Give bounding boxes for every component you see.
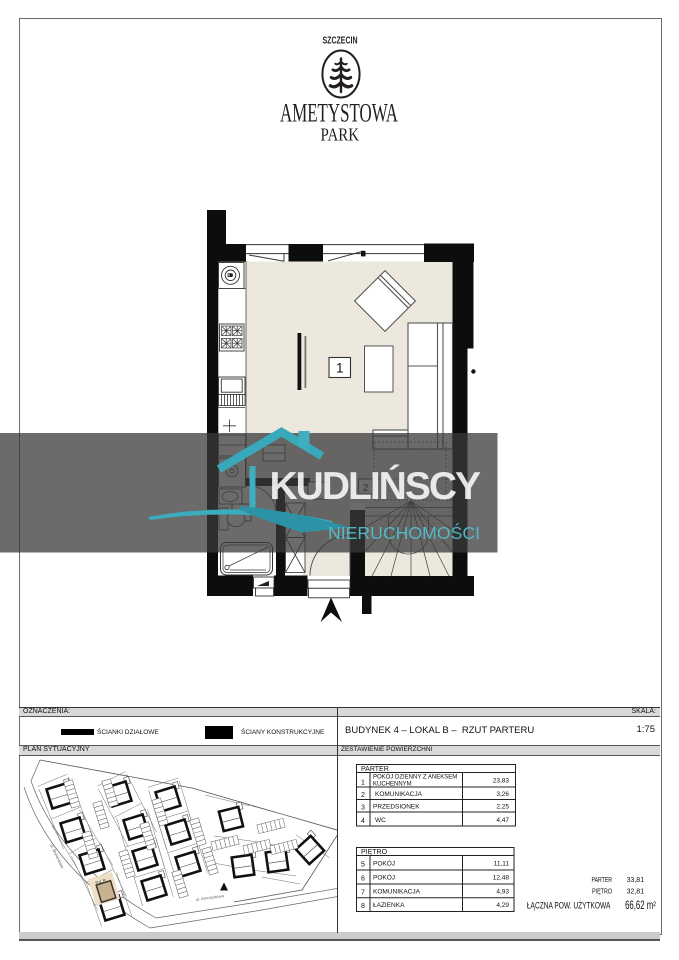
- svg-text:PIĘTRO: PIĘTRO: [361, 849, 388, 856]
- svg-text:NIERUCHOMOŚCI: NIERUCHOMOŚCI: [328, 522, 480, 543]
- svg-text:POKÓJ DZIENNY Z ANEKSEM: POKÓJ DZIENNY Z ANEKSEM: [373, 774, 457, 781]
- svg-text:SZCZECIN: SZCZECIN: [323, 36, 358, 47]
- svg-text:3: 3: [361, 804, 365, 811]
- svg-text:ŁĄCZNA POW. UŻYTKOWA: ŁĄCZNA POW. UŻYTKOWA: [527, 901, 611, 912]
- svg-text:KUCHENNYM: KUCHENNYM: [373, 782, 412, 788]
- svg-text:KOMUNIKACJA: KOMUNIKACJA: [375, 791, 423, 798]
- svg-text:WC: WC: [375, 817, 386, 824]
- svg-text:PARTER: PARTER: [361, 766, 389, 773]
- svg-text:8: 8: [361, 903, 365, 910]
- svg-text:KUDLIŃSCY: KUDLIŃSCY: [270, 464, 481, 508]
- svg-text:2,25: 2,25: [496, 804, 509, 811]
- svg-text:POKÓJ: POKÓJ: [373, 873, 395, 882]
- svg-text:4: 4: [361, 818, 365, 825]
- svg-text:1: 1: [336, 361, 344, 376]
- svg-text:PARTER: PARTER: [592, 877, 613, 884]
- svg-text:12,48: 12,48: [493, 875, 510, 882]
- svg-text:AMETYSTOWA: AMETYSTOWA: [280, 99, 398, 128]
- svg-text:4,47: 4,47: [496, 817, 509, 824]
- svg-text:KOMUNIKACJA: KOMUNIKACJA: [373, 889, 421, 896]
- svg-text:PARK: PARK: [321, 124, 360, 144]
- svg-text:7: 7: [361, 889, 365, 896]
- svg-text:23,83: 23,83: [493, 778, 510, 785]
- svg-text:4,93: 4,93: [496, 889, 509, 896]
- svg-text:ŁAZIENKA: ŁAZIENKA: [373, 902, 405, 909]
- svg-text:2: 2: [361, 792, 365, 799]
- svg-text:5: 5: [361, 862, 365, 869]
- svg-text:4,29: 4,29: [496, 902, 509, 909]
- svg-text:33,81: 33,81: [627, 875, 645, 884]
- svg-text:66,62 m²: 66,62 m²: [625, 900, 656, 912]
- svg-text:ul. Ametystowa: ul. Ametystowa: [195, 893, 224, 902]
- svg-text:11,11: 11,11: [494, 861, 510, 868]
- svg-text:PIĘTRO: PIĘTRO: [592, 888, 612, 895]
- svg-text:1: 1: [361, 780, 365, 787]
- svg-text:6: 6: [361, 876, 365, 883]
- svg-text:POKÓJ: POKÓJ: [373, 859, 395, 868]
- svg-text:3,26: 3,26: [496, 791, 509, 798]
- svg-text:32,81: 32,81: [627, 886, 645, 895]
- svg-text:PRZEDSIONEK: PRZEDSIONEK: [373, 804, 420, 811]
